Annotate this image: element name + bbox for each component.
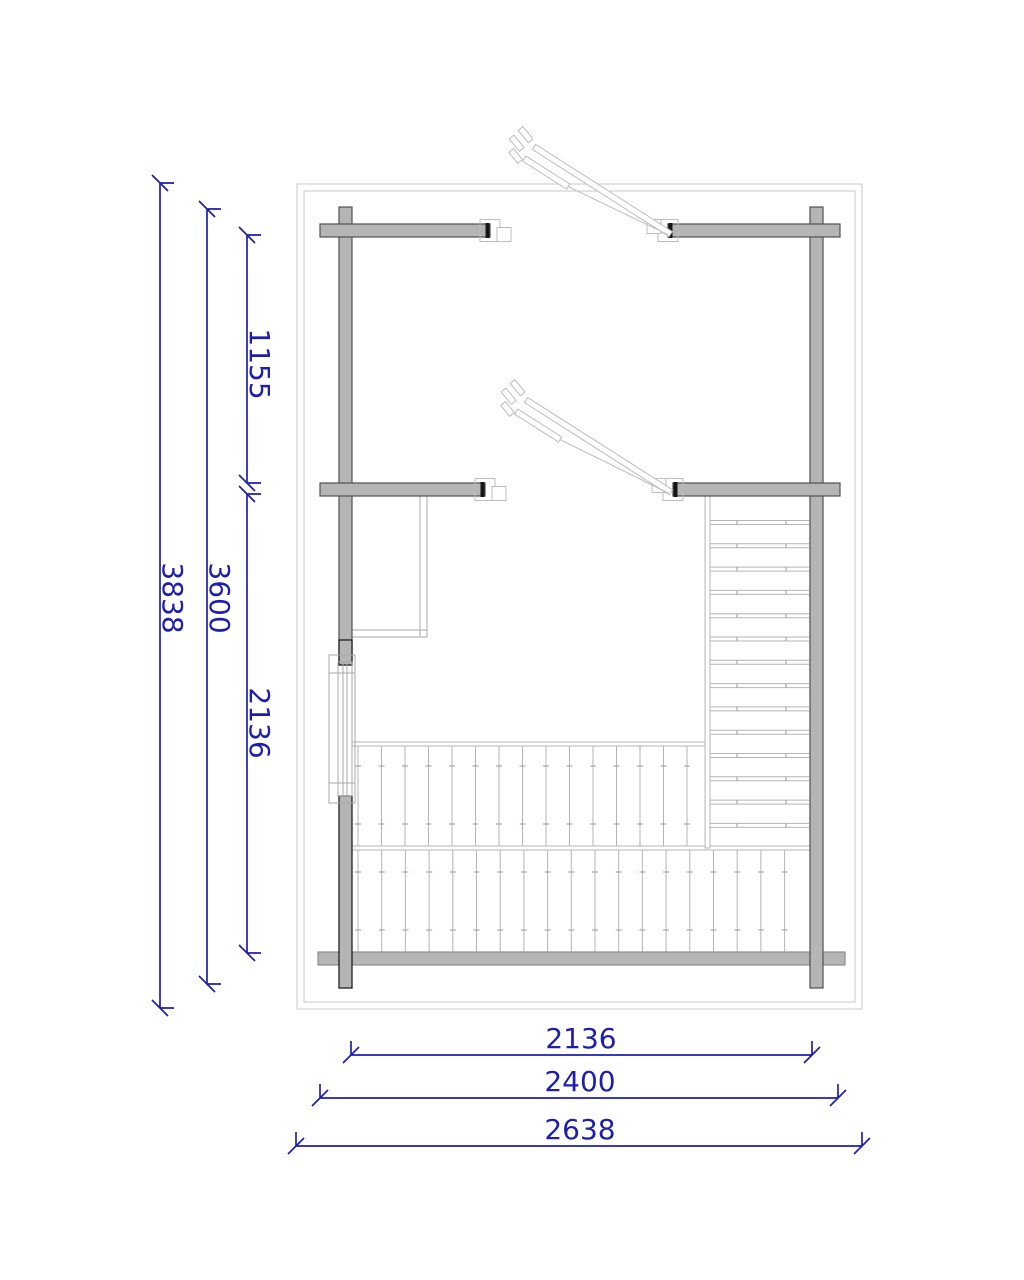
ladder-callout-middle (493, 377, 677, 511)
dim-outer-wall-width: 2400 (312, 1065, 846, 1106)
dim-upper-bay-depth: 1155 (239, 227, 276, 491)
deck-lower-band (352, 846, 810, 952)
dim-label-upper-bay-depth: 1155 (243, 328, 276, 399)
deck-lower-boards (355, 850, 788, 952)
dim-overall-width: 2638 (288, 1113, 870, 1154)
wall-right (810, 207, 823, 988)
stair-treads (710, 521, 809, 828)
walls (318, 207, 845, 988)
wall-end-connectors (475, 220, 683, 501)
dim-label-overall-depth: 3838 (156, 562, 189, 633)
dim-label-inner-width: 2136 (545, 1022, 616, 1055)
wall-left-upper (339, 207, 352, 665)
dim-label-lower-bay-depth: 2136 (243, 687, 276, 758)
dim-label-outer-wall-depth: 3600 (203, 562, 236, 633)
window-jamb-top (339, 640, 352, 665)
dim-overall-depth: 3838 (152, 175, 189, 1016)
window-casing (329, 655, 355, 803)
left-wall-window (329, 640, 355, 803)
deck-upper-boards (355, 746, 690, 846)
window-sash (338, 662, 352, 796)
staircase (705, 496, 809, 848)
wall-bottom-log (318, 952, 845, 965)
dim-label-outer-wall-width: 2400 (544, 1065, 615, 1098)
dim-outer-wall-depth: 3600 (199, 201, 236, 992)
loft-railing (352, 496, 427, 637)
dim-inner-width: 2136 (343, 1022, 820, 1063)
stair-stringer (705, 496, 710, 848)
dim-label-overall-width: 2638 (544, 1113, 615, 1146)
dim-lower-bay-depth: 2136 (239, 486, 276, 961)
floor-plan-canvas: 3838 3600 1155 2136 2136 2400 2638 (0, 0, 1024, 1280)
deck-upper-band (352, 742, 705, 846)
